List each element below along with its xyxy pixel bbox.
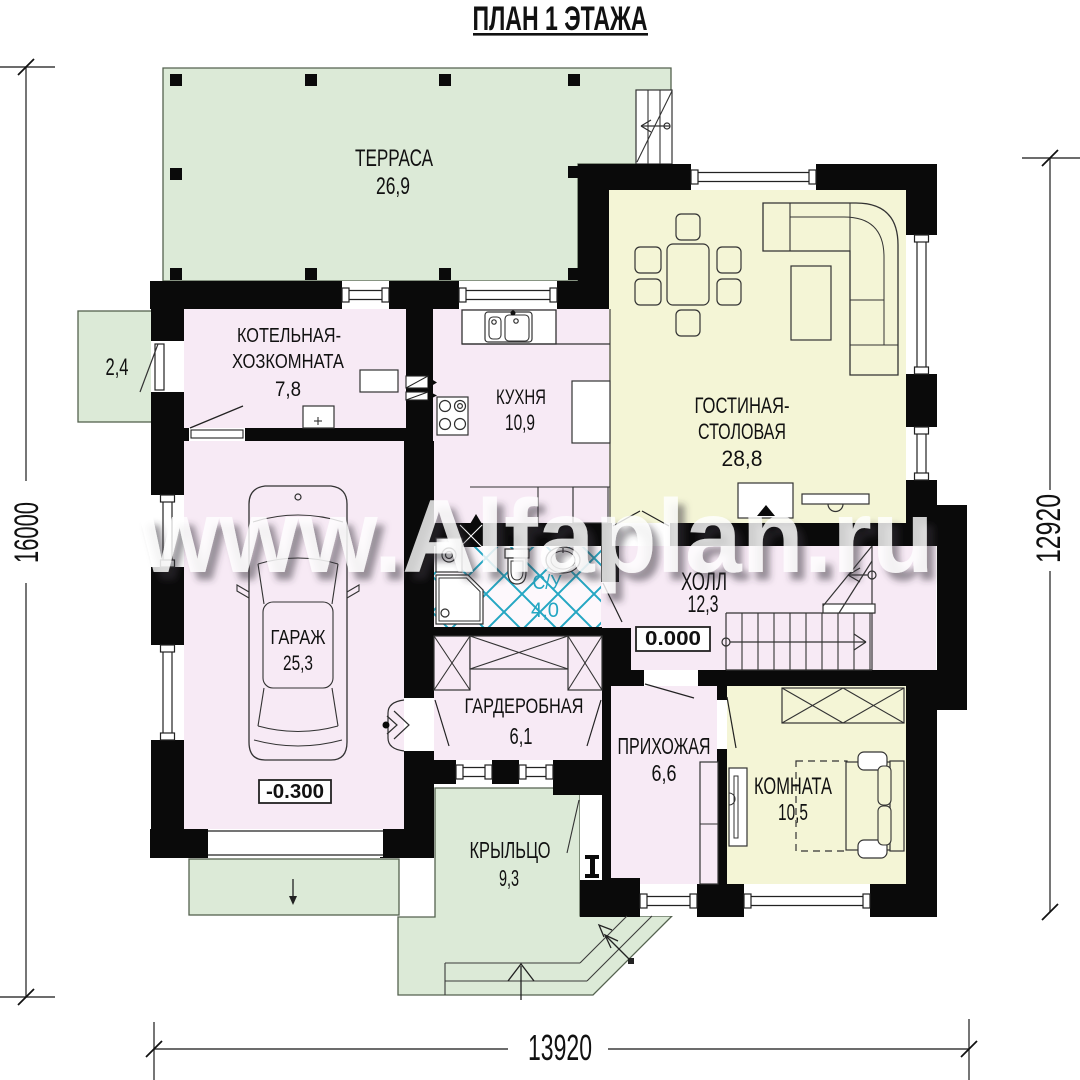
svg-text:КОТЕЛЬНАЯ-: КОТЕЛЬНАЯ-: [237, 325, 341, 347]
svg-text:ГАРДЕРОБНАЯ: ГАРДЕРОБНАЯ: [465, 695, 584, 718]
svg-text:0.000: 0.000: [645, 628, 701, 650]
svg-text:ТЕРРАСА: ТЕРРАСА: [355, 145, 433, 172]
svg-text:28,8: 28,8: [722, 446, 763, 471]
svg-text:ГАРАЖ: ГАРАЖ: [271, 627, 326, 649]
svg-text:7,8: 7,8: [275, 378, 301, 401]
svg-text:13920: 13920: [528, 1027, 592, 1068]
svg-text:КОМНАТА: КОМНАТА: [754, 773, 832, 800]
svg-text:СТОЛОВАЯ: СТОЛОВАЯ: [698, 419, 786, 444]
svg-text:16000: 16000: [8, 502, 46, 563]
svg-text:10,9: 10,9: [505, 410, 535, 435]
svg-text:6,1: 6,1: [510, 723, 533, 749]
svg-text:-0.300: -0.300: [266, 781, 324, 803]
svg-text:ПРИХОЖАЯ: ПРИХОЖАЯ: [618, 733, 711, 759]
svg-text:12920: 12920: [1030, 494, 1068, 563]
svg-text:ПЛАН 1 ЭТАЖА: ПЛАН 1 ЭТАЖА: [473, 0, 648, 38]
svg-text:4,0: 4,0: [531, 599, 559, 622]
svg-text:26,9: 26,9: [376, 173, 410, 200]
svg-text:ГОСТИНАЯ-: ГОСТИНАЯ-: [695, 393, 790, 418]
svg-text:КРЫЛЬЦО: КРЫЛЬЦО: [470, 837, 551, 863]
svg-text:ХОЗКОМНАТА: ХОЗКОМНАТА: [232, 351, 345, 373]
svg-text:www.Alfaplan.ru: www.Alfaplan.ru: [139, 479, 934, 595]
svg-text:25,3: 25,3: [283, 652, 313, 675]
svg-text:9,3: 9,3: [499, 865, 519, 891]
svg-text:10,5: 10,5: [778, 799, 808, 825]
svg-text:6,6: 6,6: [652, 760, 677, 786]
svg-text:12,3: 12,3: [688, 591, 719, 618]
svg-text:2,4: 2,4: [106, 354, 129, 381]
svg-text:КУХНЯ: КУХНЯ: [496, 386, 546, 409]
